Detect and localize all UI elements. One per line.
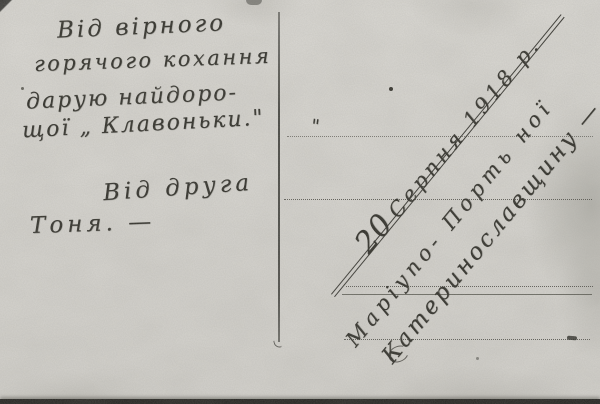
divider-bottom-hook xyxy=(273,339,282,348)
address-dotted-line-2 xyxy=(284,199,592,200)
scan-bottom-edge xyxy=(0,399,600,404)
paper-speck xyxy=(389,87,393,91)
postcard-photo: Від вірного горячого кохання дарую найдо… xyxy=(0,0,600,404)
paper-speck xyxy=(21,87,24,90)
message-line-2: горячого кохання xyxy=(34,44,272,76)
scan-edge-nub xyxy=(246,0,262,5)
ink-blot xyxy=(567,336,577,341)
address-dotted-line-4 xyxy=(344,339,590,340)
message-signature: Тоня. — xyxy=(30,209,156,239)
paper-speck xyxy=(476,357,479,360)
stray-quote-mark: " xyxy=(310,116,321,138)
message-line-1: Від вірного xyxy=(57,10,227,43)
center-divider-line xyxy=(278,12,280,342)
message-line-5: Від друга xyxy=(102,170,254,206)
scan-corner-mark xyxy=(0,0,17,15)
address-line-region: Катеринославщину — xyxy=(377,96,600,368)
